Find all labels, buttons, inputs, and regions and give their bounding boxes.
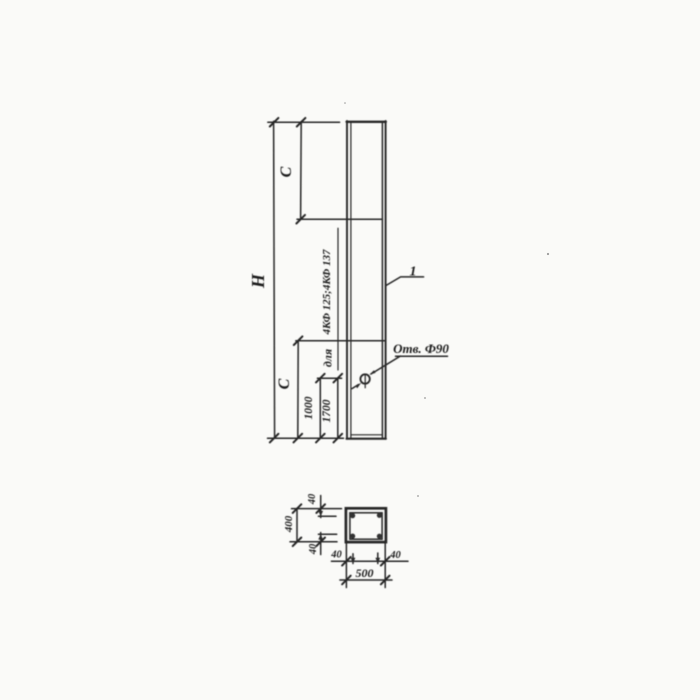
svg-text:40: 40 bbox=[389, 550, 401, 561]
svg-text:C: C bbox=[278, 166, 295, 177]
svg-text:H: H bbox=[248, 273, 268, 289]
svg-text:для: для bbox=[321, 349, 335, 367]
svg-text:400: 400 bbox=[283, 515, 295, 533]
svg-text:1000: 1000 bbox=[303, 396, 315, 419]
svg-text:4КФ 125;4КФ 137: 4КФ 125;4КФ 137 bbox=[321, 249, 333, 336]
svg-text:Отв. Ф90: Отв. Ф90 bbox=[393, 341, 449, 356]
svg-text:40: 40 bbox=[330, 550, 342, 561]
svg-text:500: 500 bbox=[356, 566, 374, 580]
svg-text:40: 40 bbox=[307, 493, 318, 505]
svg-text:1700: 1700 bbox=[321, 399, 333, 422]
svg-text:40: 40 bbox=[308, 543, 319, 555]
svg-text:1: 1 bbox=[410, 265, 417, 280]
svg-text:C: C bbox=[276, 378, 293, 389]
